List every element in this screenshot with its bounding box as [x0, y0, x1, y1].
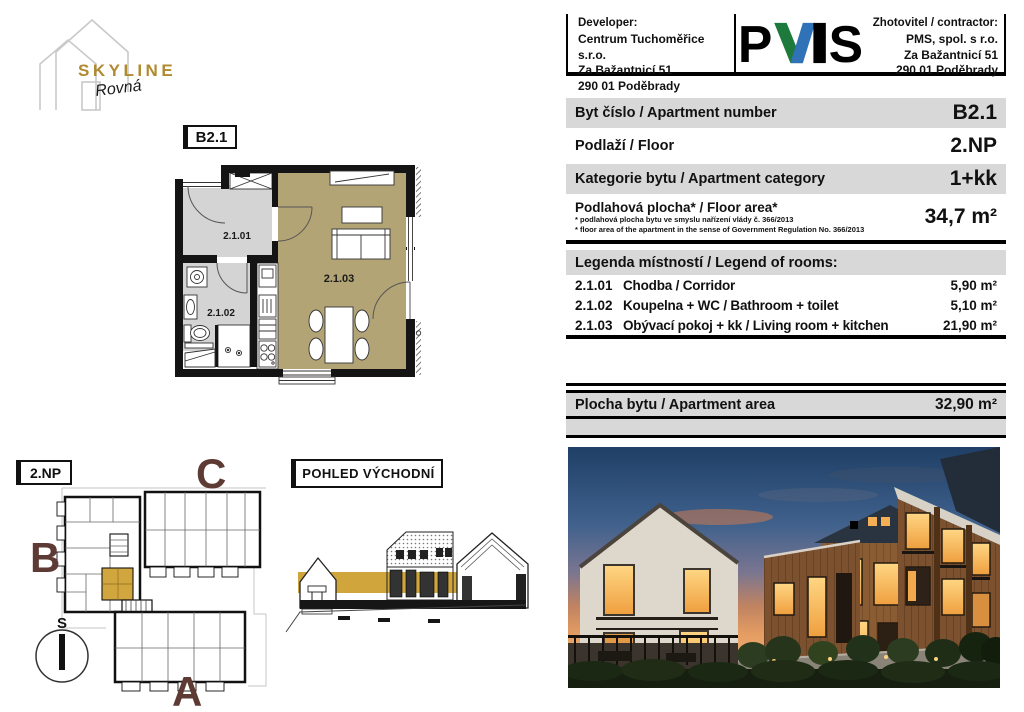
parties-header: Developer: Centrum Tuchoměřice s.r.o. Za… — [566, 14, 1006, 72]
elevation-title: POHLED VÝCHODNÍ — [302, 466, 434, 481]
siteplan-floor-label: 2.NP — [16, 460, 72, 485]
contractor-block: Zhotovitel / contractor: PMS, spol. s r.… — [864, 14, 1004, 72]
room-corridor-floor — [183, 185, 272, 257]
legend-code: 2.1.03 — [575, 318, 623, 333]
apartment-area-row: Plocha bytu / Apartment area 32,90 m² — [566, 393, 1006, 416]
legend-name: Chodba / Corridor — [623, 278, 917, 293]
floor-area-value: 34,7 m² — [925, 205, 997, 229]
floor-area-label-block: Podlahová plocha* / Floor area* * podlah… — [575, 200, 864, 234]
dining-table-icon — [325, 307, 353, 363]
building-letter-b: B — [30, 534, 60, 581]
legend-area: 5,90 m² — [917, 278, 997, 293]
building-c-footprint — [145, 492, 260, 577]
pms-letter-s: S — [829, 21, 863, 65]
fridge-icon — [259, 295, 276, 317]
floorplan-unit-label: B2.1 — [183, 125, 237, 149]
category-label: Kategorie bytu / Apartment category — [575, 171, 825, 187]
apartment-datasheet-page: { "brand": { "name": "SKYLINE", "script"… — [0, 0, 1024, 712]
building-b-footprint — [57, 497, 140, 612]
floor-label: 2.NP — [30, 465, 61, 481]
legend-header: Legenda místností / Legend of rooms: — [566, 250, 1006, 275]
floor-area-label: Podlahová plocha* / Floor area* — [575, 200, 864, 215]
spacer — [566, 339, 1006, 383]
legend-name: Koupelna + WC / Bathroom + toilet — [623, 298, 917, 313]
gray-band — [566, 419, 1006, 435]
chair-icon — [355, 310, 369, 332]
contractor-addr2: 290 01 Poděbrady — [864, 63, 998, 79]
floor-label: Podlaží / Floor — [575, 138, 674, 154]
brand-name: SKYLINE — [78, 61, 176, 80]
elevation-drawing — [278, 490, 534, 655]
developer-addr1: Za Bažantnicí 51 — [578, 63, 734, 79]
category-row: Kategorie bytu / Apartment category 1+kk — [566, 164, 1006, 194]
contractor-name: PMS, spol. s r.o. — [864, 32, 998, 48]
skyline-rovna-logo: SKYLINE Rovná — [18, 12, 188, 118]
floor-area-note-cz: * podlahová plocha bytu ve smyslu naříze… — [575, 215, 864, 224]
coffee-table-icon — [342, 207, 382, 223]
balcony-hatch-top — [416, 167, 421, 217]
elevation-right-building — [457, 533, 528, 608]
elevation-middle-building — [387, 532, 453, 600]
floor-value: 2.NP — [950, 134, 997, 158]
chair-icon — [309, 310, 323, 332]
developer-addr2: 290 01 Poděbrady — [578, 79, 734, 95]
legend-code: 2.1.01 — [575, 278, 623, 293]
divider-rule — [566, 240, 1006, 244]
compass-north-label: S — [57, 615, 67, 632]
contractor-label: Zhotovitel / contractor: — [864, 17, 998, 29]
summary-bottom-rule2 — [566, 435, 1006, 438]
legend-name: Obývací pokoj + kk / Living room + kitch… — [623, 318, 917, 333]
toilet-tank-icon — [184, 325, 191, 342]
room-label-bathroom: 2.1.02 — [207, 308, 235, 319]
developer-block: Developer: Centrum Tuchoměřice s.r.o. Za… — [566, 14, 734, 72]
utility-nook — [218, 325, 250, 367]
brand-script: Rovná — [94, 77, 142, 100]
apartment-number-value: B2.1 — [953, 101, 997, 125]
room-label-living: 2.1.03 — [324, 273, 355, 285]
pms-black-stem — [813, 23, 825, 63]
compass-icon: S — [36, 615, 88, 682]
apartment-area-value: 32,90 m² — [935, 396, 997, 414]
pms-letter-p: P — [738, 21, 771, 65]
developer-name: Centrum Tuchoměřice s.r.o. — [578, 32, 734, 63]
legend-code: 2.1.02 — [575, 298, 623, 313]
apartment-area-label: Plocha bytu / Apartment area — [575, 397, 775, 413]
legend-row-corridor: 2.1.01 Chodba / Corridor 5,90 m² — [566, 275, 1006, 295]
building-letter-c: C — [196, 450, 226, 497]
elevation-title-box: POHLED VÝCHODNÍ — [291, 459, 443, 488]
chair-icon — [355, 338, 369, 360]
project-photo — [568, 447, 1000, 688]
apartment-number-label: Byt číslo / Apartment number — [575, 105, 777, 121]
developer-label: Developer: — [578, 17, 734, 29]
floor-row: Podlaží / Floor 2.NP — [566, 128, 1006, 164]
legend-area: 21,90 m² — [917, 318, 997, 333]
legend-row-living: 2.1.03 Obývací pokoj + kk / Living room … — [566, 315, 1006, 335]
building-letter-a: A — [172, 668, 202, 710]
unit-number: B2.1 — [196, 129, 228, 146]
floor-area-note-en: * floor area of the apartment in the sen… — [575, 225, 864, 234]
chair-icon — [309, 338, 323, 360]
info-panel: Developer: Centrum Tuchoměřice s.r.o. Za… — [566, 14, 1006, 438]
legend-area: 5,10 m² — [917, 298, 997, 313]
contractor-addr1: Za Bažantnicí 51 — [864, 48, 998, 64]
entry-hatch — [230, 173, 272, 189]
floor-area-row: Podlahová plocha* / Floor area* * podlah… — [566, 194, 1006, 240]
apartment-number-row: Byt číslo / Apartment number B2.1 — [566, 98, 1006, 128]
legend-title: Legenda místností / Legend of rooms: — [575, 255, 838, 271]
legend-row-bathroom: 2.1.02 Koupelna + WC / Bathroom + toilet… — [566, 295, 1006, 315]
room-label-corridor: 2.1.01 — [223, 231, 251, 242]
elevation-ground — [286, 600, 526, 632]
pms-logo: P S — [736, 21, 864, 65]
pms-logo-block: P S — [734, 14, 864, 72]
balcony-hatch-bottom — [416, 321, 421, 375]
floorplan-drawing: 2.1.01 2.1.02 2.1.03 — [175, 155, 425, 395]
category-value: 1+kk — [950, 167, 997, 191]
kitchen-appliances — [259, 265, 276, 367]
